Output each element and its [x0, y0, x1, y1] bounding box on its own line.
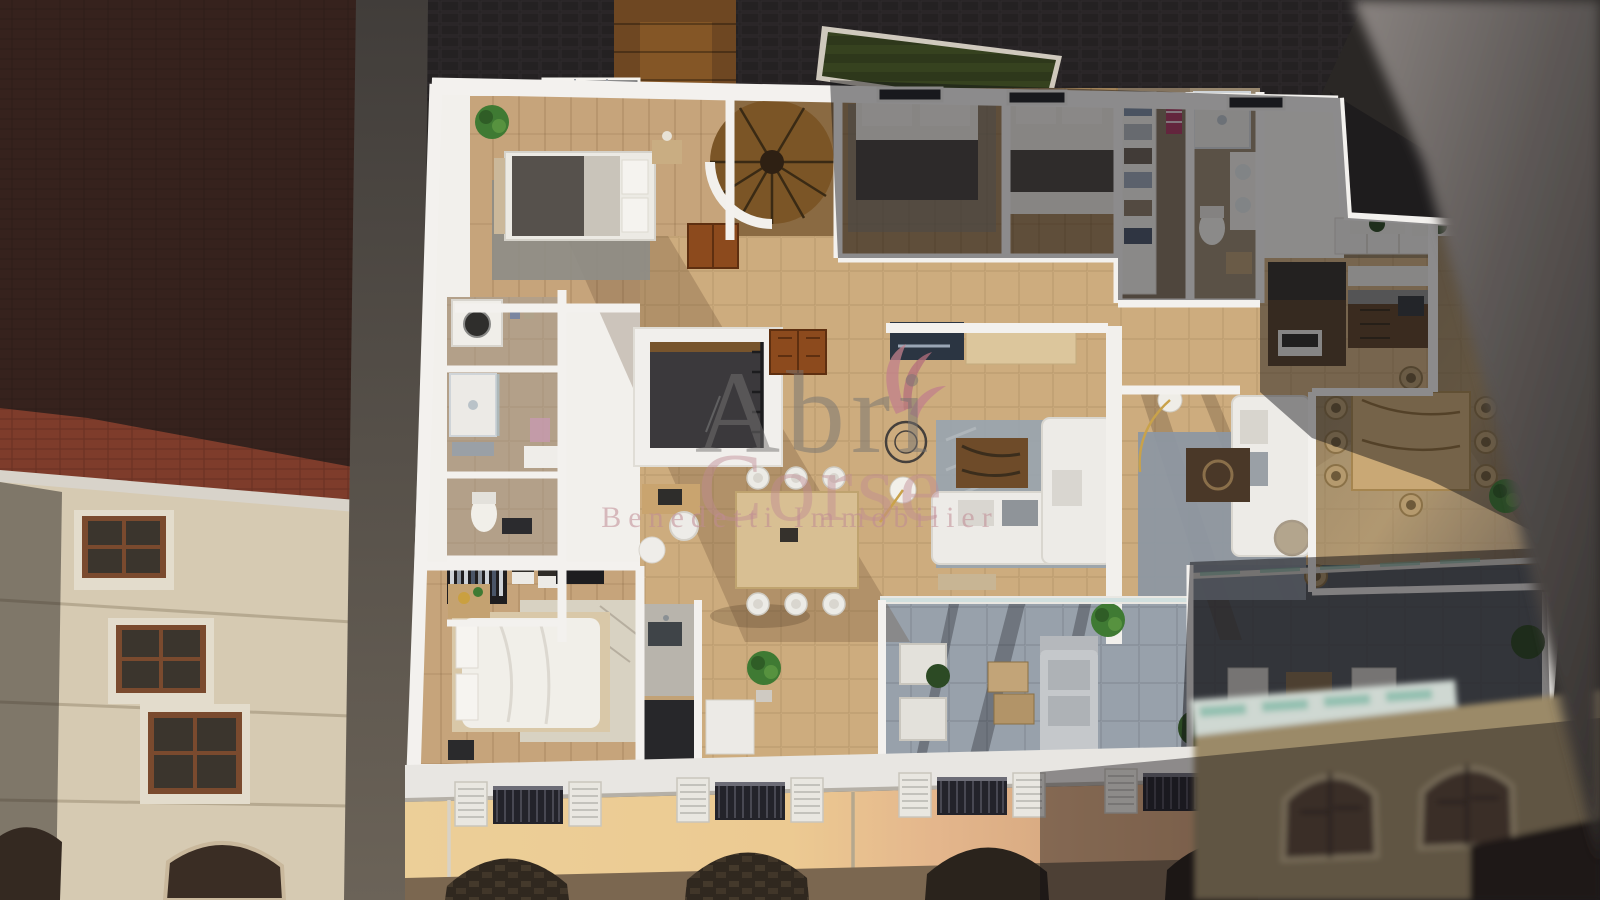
left-arch-edge — [0, 827, 62, 900]
potted-plant-icon — [475, 105, 509, 139]
outdoor-armchair — [900, 698, 946, 740]
dining-chair — [747, 593, 769, 615]
floorplan-render: Abri Corse Benedetti Immobilier — [0, 0, 1600, 900]
bed-duvet — [462, 618, 600, 728]
woven-chair — [1275, 521, 1309, 555]
rattan-chair — [1400, 494, 1422, 516]
pillow — [456, 622, 478, 668]
rattan-chair — [1325, 465, 1347, 487]
fixture — [706, 700, 754, 754]
balcony-unit — [677, 778, 823, 822]
bench — [448, 740, 474, 760]
render-stage: Abri Corse Benedetti Immobilier — [0, 0, 1600, 900]
cushion — [1048, 696, 1090, 726]
kitchenette — [640, 604, 694, 760]
potted-plant-icon — [747, 651, 781, 685]
vanity — [524, 446, 558, 468]
left-window-2 — [108, 618, 214, 704]
bed-bench — [494, 158, 505, 234]
dining-chair — [785, 593, 807, 615]
washer-door — [464, 311, 490, 337]
bench — [938, 574, 996, 590]
faucet — [663, 615, 669, 621]
toiletries — [530, 418, 550, 442]
small-plant — [926, 664, 950, 688]
dark-cabinet — [640, 700, 694, 760]
table-lamp — [662, 131, 672, 141]
outdoor-table — [994, 694, 1034, 724]
small-plant — [473, 587, 483, 597]
bed-blanket — [584, 156, 620, 236]
left-window-1 — [74, 510, 174, 590]
cushion — [1052, 470, 1082, 506]
balcony-unit — [899, 773, 1045, 817]
pillow — [456, 674, 478, 720]
outdoor-table — [988, 662, 1028, 692]
cushion — [1048, 660, 1090, 690]
cushion — [1240, 410, 1268, 444]
potted-plant-icon — [1091, 603, 1125, 637]
plant-pot — [756, 690, 772, 702]
desk-chair — [639, 537, 665, 563]
bath-mat — [452, 442, 494, 456]
watermark-subtitle: Benedetti Immobilier — [601, 501, 998, 534]
nightstand — [652, 140, 682, 164]
left-window-3 — [140, 704, 250, 804]
dining-chair — [823, 593, 845, 615]
cushion — [1002, 500, 1038, 526]
coffee-table — [1186, 448, 1250, 502]
pillow — [622, 160, 648, 194]
decor-bowl — [458, 592, 470, 604]
towel-rack — [502, 518, 532, 534]
pillow — [622, 198, 648, 232]
bed-throw — [512, 156, 584, 236]
roof-texture — [0, 0, 365, 468]
coffee-table — [956, 438, 1028, 488]
deck-highlight — [640, 22, 712, 88]
left-building — [0, 0, 365, 900]
balcony-unit — [455, 782, 601, 826]
sideboard — [966, 330, 1076, 364]
sink — [648, 622, 682, 646]
